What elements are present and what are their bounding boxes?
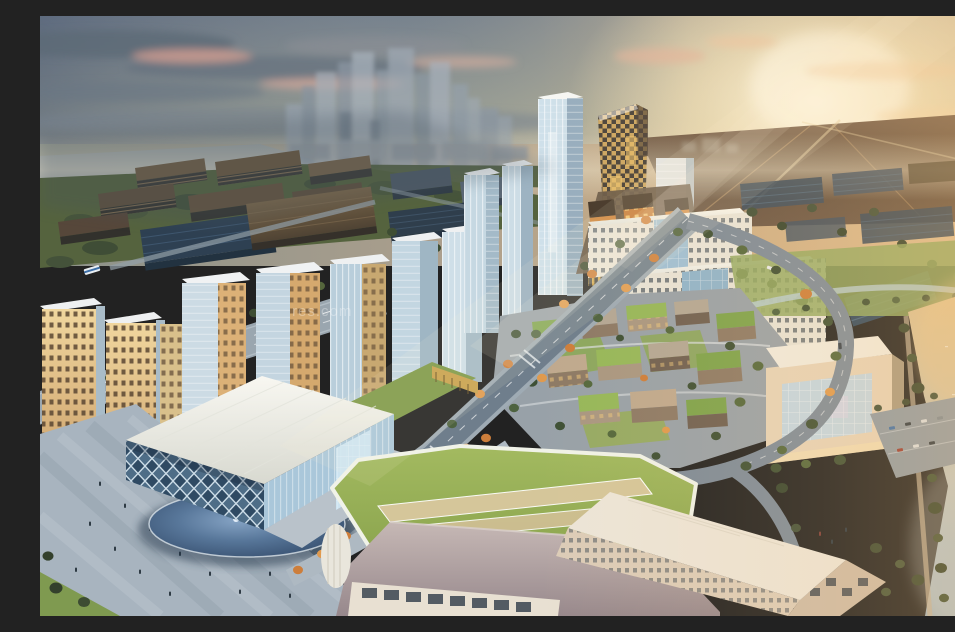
rendering-canvas: res.com: [40, 16, 955, 616]
architectural-aerial-rendering: res.com: [40, 16, 955, 616]
warm-overlay: [40, 16, 955, 616]
